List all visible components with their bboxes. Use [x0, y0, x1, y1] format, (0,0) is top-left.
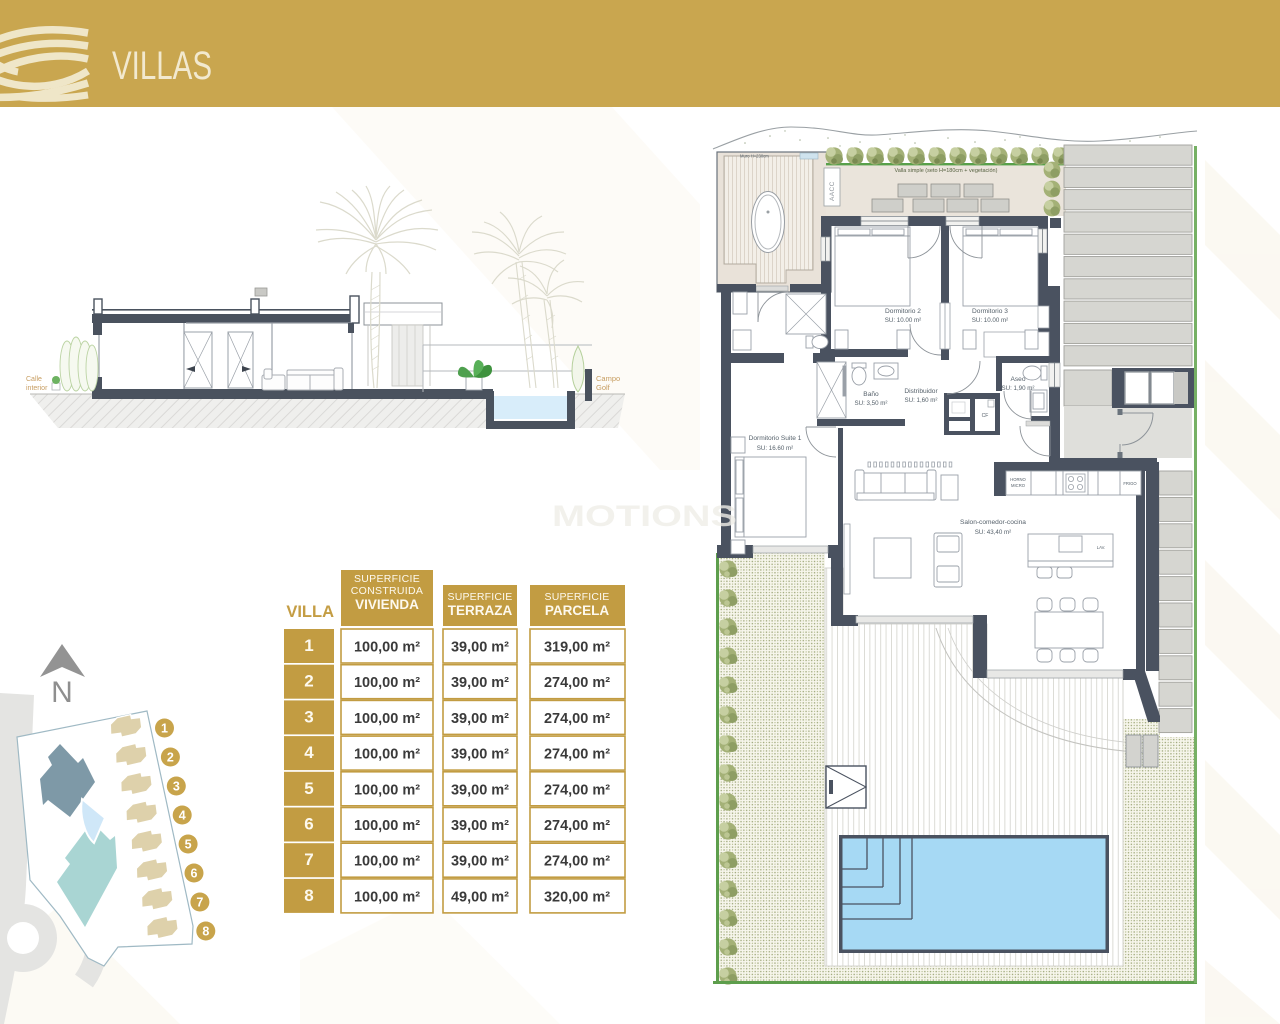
svg-text:274,00 m²: 274,00 m²	[544, 782, 610, 798]
svg-text:CF: CF	[982, 413, 989, 419]
svg-text:274,00 m²: 274,00 m²	[544, 675, 610, 691]
svg-text:100,00 m²: 100,00 m²	[354, 711, 420, 727]
svg-text:39,00 m²: 39,00 m²	[451, 640, 509, 656]
svg-text:6: 6	[304, 815, 313, 834]
svg-text:100,00 m²: 100,00 m²	[354, 747, 420, 763]
svg-text:AACC: AACC	[829, 181, 836, 201]
svg-text:Dormitorio 2: Dormitorio 2	[885, 308, 921, 315]
svg-text:Muro H=230cm: Muro H=230cm	[740, 154, 769, 159]
svg-text:4: 4	[304, 743, 314, 762]
svg-text:SUPERFICIE: SUPERFICIE	[354, 573, 420, 585]
svg-text:100,00 m²: 100,00 m²	[354, 640, 420, 656]
svg-text:274,00 m²: 274,00 m²	[544, 747, 610, 763]
svg-text:320,00 m²: 320,00 m²	[544, 889, 610, 905]
svg-text:39,00 m²: 39,00 m²	[451, 818, 509, 834]
svg-text:Dormitorio Suite 1: Dormitorio Suite 1	[749, 435, 802, 442]
svg-text:VILLAS: VILLAS	[112, 44, 212, 88]
svg-text:100,00 m²: 100,00 m²	[354, 818, 420, 834]
svg-text:100,00 m²: 100,00 m²	[354, 889, 420, 905]
svg-text:SUPERFICIE: SUPERFICIE	[544, 591, 609, 603]
svg-text:PARCELA: PARCELA	[545, 603, 610, 618]
svg-text:Distribuidor: Distribuidor	[904, 388, 938, 395]
svg-text:7: 7	[304, 850, 313, 869]
svg-text:interior: interior	[26, 385, 48, 392]
svg-text:3: 3	[304, 707, 313, 726]
svg-text:Campo: Campo	[596, 374, 620, 383]
svg-text:5: 5	[304, 779, 313, 798]
svg-text:Golf: Golf	[596, 383, 611, 392]
svg-text:4: 4	[179, 808, 186, 822]
svg-text:5: 5	[185, 837, 192, 851]
svg-text:39,00 m²: 39,00 m²	[451, 854, 509, 870]
svg-text:319,00 m²: 319,00 m²	[544, 640, 610, 656]
svg-text:6: 6	[191, 866, 198, 880]
svg-text:SU: 16.60 m²: SU: 16.60 m²	[757, 445, 793, 452]
svg-text:3: 3	[173, 779, 180, 793]
svg-text:Baño: Baño	[863, 391, 879, 398]
svg-text:39,00 m²: 39,00 m²	[451, 675, 509, 691]
svg-text:VILLA: VILLA	[286, 603, 334, 621]
svg-text:100,00 m²: 100,00 m²	[354, 854, 420, 870]
svg-text:VIVIENDA: VIVIENDA	[355, 597, 419, 612]
svg-text:274,00 m²: 274,00 m²	[544, 711, 610, 727]
svg-text:LAV.: LAV.	[1097, 545, 1105, 550]
svg-text:39,00 m²: 39,00 m²	[451, 711, 509, 727]
svg-text:39,00 m²: 39,00 m²	[451, 782, 509, 798]
svg-text:Valla simple (seto H=180cm + v: Valla simple (seto H=180cm + vegetación)	[895, 168, 998, 174]
svg-text:SU: 10.00 m²: SU: 10.00 m²	[972, 317, 1008, 324]
svg-text:100,00 m²: 100,00 m²	[354, 782, 420, 798]
svg-text:SU: 10.00 m²: SU: 10.00 m²	[885, 317, 921, 324]
svg-text:N: N	[51, 676, 73, 709]
svg-text:49,00 m²: 49,00 m²	[451, 889, 509, 905]
svg-text:FRIGO: FRIGO	[1123, 481, 1137, 486]
svg-text:Salon-comedor-cocina: Salon-comedor-cocina	[960, 519, 1026, 526]
svg-text:SU: 1,60 m²: SU: 1,60 m²	[904, 397, 937, 404]
svg-text:Aseo: Aseo	[1010, 376, 1025, 383]
svg-text:7: 7	[196, 895, 203, 909]
svg-text:39,00 m²: 39,00 m²	[451, 747, 509, 763]
svg-text:TERRAZA: TERRAZA	[448, 603, 513, 618]
svg-text:1: 1	[161, 721, 168, 735]
svg-text:Calle: Calle	[26, 376, 42, 383]
svg-text:Dormitorio 3: Dormitorio 3	[972, 308, 1008, 315]
svg-text:274,00 m²: 274,00 m²	[544, 854, 610, 870]
svg-text:8: 8	[202, 924, 209, 938]
svg-text:2: 2	[167, 750, 174, 764]
svg-text:MOTIONS: MOTIONS	[552, 500, 737, 533]
svg-text:MICRO: MICRO	[1011, 483, 1026, 488]
svg-text:SU: 1,90 m²: SU: 1,90 m²	[1001, 385, 1034, 392]
svg-text:1: 1	[304, 636, 313, 655]
svg-text:8: 8	[304, 886, 313, 905]
svg-text:SUPERFICIE: SUPERFICIE	[447, 591, 512, 603]
svg-text:100,00 m²: 100,00 m²	[354, 675, 420, 691]
svg-text:CONSTRUIDA: CONSTRUIDA	[351, 585, 423, 597]
svg-text:2: 2	[304, 672, 313, 691]
svg-text:274,00 m²: 274,00 m²	[544, 818, 610, 834]
svg-text:SU: 43,40 m²: SU: 43,40 m²	[975, 529, 1011, 536]
svg-text:HORNO: HORNO	[1010, 477, 1026, 482]
svg-text:SU: 3,50 m²: SU: 3,50 m²	[854, 400, 887, 407]
